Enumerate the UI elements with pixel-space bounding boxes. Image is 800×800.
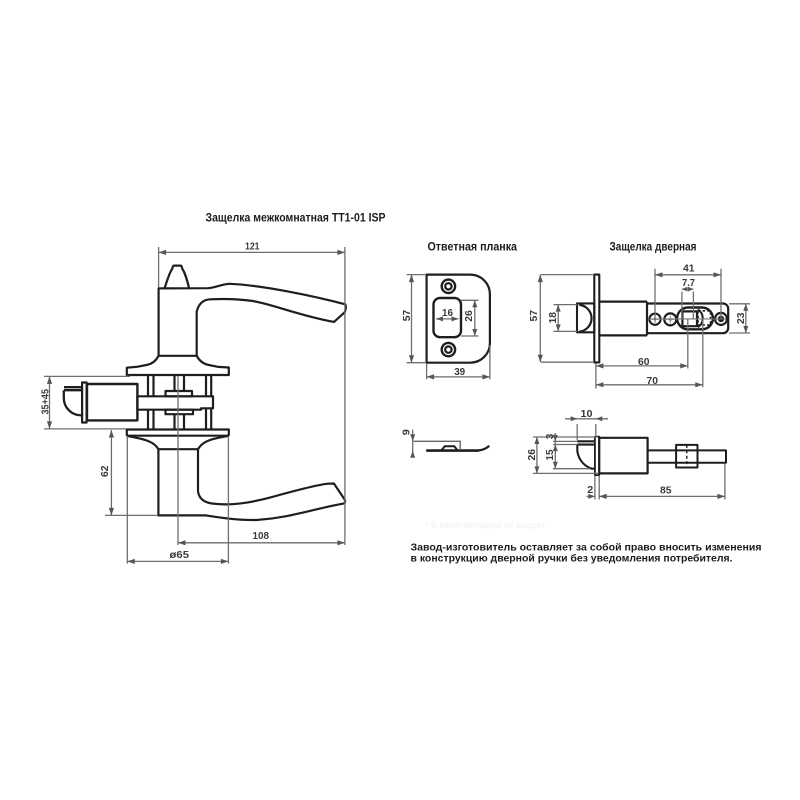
svg-text:2: 2 [587, 484, 593, 496]
svg-text:9: 9 [401, 429, 413, 435]
svg-text:16: 16 [442, 307, 453, 319]
svg-text:* В комплектацию не входит: * В комплектацию не входит [426, 520, 547, 530]
svg-text:60: 60 [638, 356, 650, 368]
svg-text:10: 10 [581, 408, 593, 420]
svg-text:26: 26 [463, 310, 475, 322]
svg-text:Защелка дверная: Защелка дверная [610, 242, 697, 254]
svg-text:39: 39 [454, 366, 465, 378]
svg-text:26: 26 [526, 449, 538, 461]
svg-text:18: 18 [547, 312, 559, 324]
svg-text:85: 85 [660, 484, 672, 496]
svg-text:121: 121 [245, 241, 260, 253]
svg-text:62: 62 [99, 465, 111, 477]
svg-text:108: 108 [253, 530, 270, 542]
svg-text:ø65: ø65 [170, 549, 190, 561]
svg-text:в конструкцию дверной ручки бе: в конструкцию дверной ручки без уведомле… [411, 553, 733, 565]
svg-text:35+45: 35+45 [40, 389, 52, 415]
svg-text:23: 23 [735, 312, 747, 324]
svg-text:41: 41 [683, 262, 695, 274]
svg-text:Защелка межкомнатная ТТ1-01 IS: Защелка межкомнатная ТТ1-01 ISP [206, 213, 386, 225]
svg-text:57: 57 [528, 310, 540, 322]
svg-text:15: 15 [544, 449, 556, 460]
svg-text:57: 57 [401, 310, 413, 322]
svg-text:Ответная планка: Ответная планка [428, 242, 518, 254]
svg-text:3: 3 [544, 434, 556, 440]
svg-text:70: 70 [647, 375, 659, 387]
svg-text:7.7: 7.7 [682, 277, 695, 289]
